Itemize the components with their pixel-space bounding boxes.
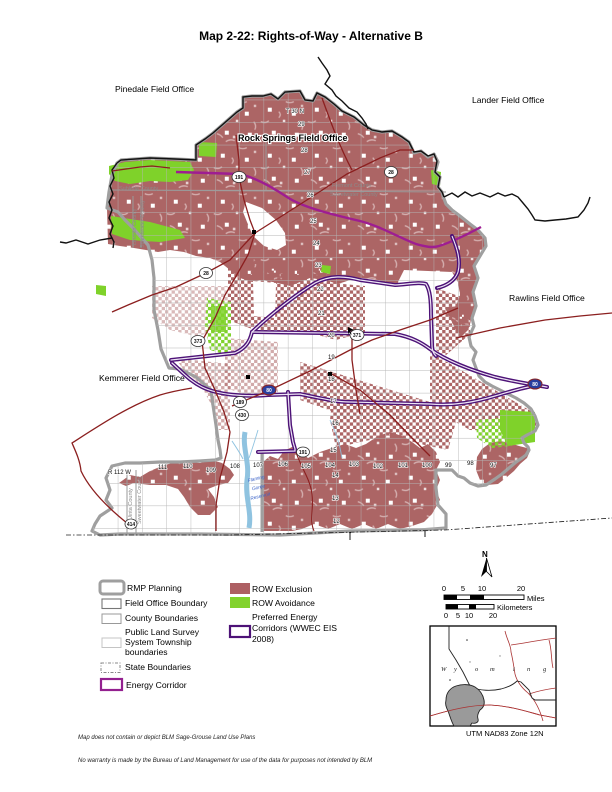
svg-text:UTM NAD83 Zone 12N: UTM NAD83 Zone 12N — [466, 729, 544, 738]
svg-text:18: 18 — [328, 377, 335, 383]
svg-text:371: 371 — [353, 333, 362, 339]
svg-text:102: 102 — [373, 464, 384, 470]
svg-text:Uinta County: Uinta County — [128, 488, 134, 520]
svg-text:n: n — [527, 666, 530, 673]
svg-text:Map 2-22: Rights-of-Way - Alte: Map 2-22: Rights-of-Way - Alternative B — [199, 29, 423, 43]
svg-text:Kemmerer Field Office: Kemmerer Field Office — [99, 373, 185, 383]
svg-text:107: 107 — [253, 463, 264, 469]
svg-text:W: W — [441, 666, 447, 673]
svg-text:Rock Springs Field Office: Rock Springs Field Office — [238, 133, 348, 143]
svg-text:109: 109 — [206, 468, 217, 474]
svg-text:T 30 N: T 30 N — [286, 109, 304, 115]
svg-text:m: m — [490, 666, 495, 673]
svg-text:10: 10 — [465, 611, 473, 620]
svg-text:Lander Field Office: Lander Field Office — [472, 95, 545, 105]
svg-text:boundaries: boundaries — [125, 647, 168, 657]
svg-text:108: 108 — [230, 464, 241, 470]
svg-text:System Township: System Township — [125, 637, 192, 647]
svg-text:Pinedale Field Office: Pinedale Field Office — [115, 84, 194, 94]
svg-text:28: 28 — [203, 271, 209, 277]
svg-text:Energy Corridor: Energy Corridor — [126, 680, 187, 690]
svg-text:21: 21 — [318, 311, 325, 317]
svg-text:ROW Exclusion: ROW Exclusion — [252, 584, 312, 594]
svg-text:N: N — [482, 550, 488, 559]
svg-text:y: y — [453, 666, 457, 673]
svg-text:23: 23 — [315, 263, 322, 269]
svg-text:22: 22 — [317, 287, 324, 293]
svg-text:25: 25 — [310, 219, 317, 225]
svg-text:Sweetwater County: Sweetwater County — [330, 192, 378, 198]
svg-text:Field Office Boundary: Field Office Boundary — [125, 598, 208, 608]
svg-text:105: 105 — [301, 464, 312, 470]
svg-text:14: 14 — [332, 473, 339, 479]
svg-text:Corridors (WWEC EIS: Corridors (WWEC EIS — [252, 623, 337, 633]
svg-text:191: 191 — [299, 450, 308, 456]
svg-text:Sublette County: Sublette County — [119, 186, 158, 192]
svg-text:28: 28 — [388, 170, 394, 176]
svg-text:98: 98 — [467, 461, 474, 467]
svg-text:20: 20 — [517, 584, 525, 593]
svg-text:26: 26 — [307, 193, 314, 199]
svg-text:i: i — [513, 666, 515, 673]
svg-text:101: 101 — [398, 463, 409, 469]
svg-text:Sweetwater County: Sweetwater County — [140, 200, 146, 248]
svg-text:104: 104 — [325, 463, 336, 469]
svg-text:12: 12 — [333, 519, 340, 525]
svg-text:414: 414 — [127, 522, 136, 528]
svg-text:100: 100 — [422, 463, 433, 469]
svg-text:189: 189 — [236, 400, 245, 406]
svg-text:R 112 W: R 112 W — [108, 470, 131, 476]
svg-text:No warranty is made by the Bur: No warranty is made by the Bureau of Lan… — [78, 758, 372, 764]
svg-text:373: 373 — [194, 339, 203, 345]
svg-text:ROW Avoidance: ROW Avoidance — [252, 598, 315, 608]
svg-text:2008): 2008) — [252, 634, 274, 644]
svg-text:99: 99 — [445, 463, 452, 469]
svg-text:15: 15 — [330, 448, 337, 454]
svg-text:State Boundaries: State Boundaries — [125, 662, 191, 672]
svg-text:17: 17 — [330, 399, 337, 405]
svg-text:Public Land Survey: Public Land Survey — [125, 627, 200, 637]
svg-text:28: 28 — [301, 148, 308, 154]
svg-text:Rawlins Field Office: Rawlins Field Office — [509, 293, 585, 303]
svg-text:27: 27 — [304, 170, 311, 176]
svg-text:Fremont County: Fremont County — [332, 183, 372, 189]
svg-text:Sweetwater County: Sweetwater County — [137, 476, 143, 524]
svg-text:111: 111 — [158, 465, 168, 471]
svg-text:19: 19 — [328, 355, 335, 361]
svg-text:5: 5 — [456, 611, 460, 620]
svg-text:106: 106 — [278, 462, 289, 468]
svg-text:97: 97 — [490, 463, 497, 469]
svg-text:Lincoln County: Lincoln County — [132, 208, 138, 245]
svg-text:103: 103 — [349, 462, 360, 468]
svg-text:110: 110 — [183, 464, 193, 470]
svg-text:20: 20 — [489, 611, 497, 620]
svg-text:Preferred Energy: Preferred Energy — [252, 612, 318, 622]
svg-text:16: 16 — [332, 421, 339, 427]
svg-text:10: 10 — [478, 584, 486, 593]
svg-text:20: 20 — [328, 333, 335, 339]
svg-text:13: 13 — [332, 496, 339, 502]
svg-text:29: 29 — [298, 122, 305, 128]
svg-text:430: 430 — [238, 413, 247, 419]
svg-text:0: 0 — [442, 584, 446, 593]
svg-text:Kilometers: Kilometers — [497, 603, 533, 612]
svg-text:5: 5 — [461, 584, 465, 593]
svg-text:RMP Planning: RMP Planning — [127, 583, 182, 593]
svg-text:80: 80 — [266, 388, 272, 394]
svg-text:0: 0 — [444, 611, 448, 620]
svg-text:191: 191 — [235, 175, 244, 181]
svg-text:Miles: Miles — [527, 594, 545, 603]
svg-text:80: 80 — [532, 382, 538, 388]
svg-text:Map does not contain or depict: Map does not contain or depict BLM Sage-… — [78, 735, 255, 741]
svg-text:County Boundaries: County Boundaries — [125, 613, 198, 623]
svg-text:24: 24 — [313, 241, 320, 247]
